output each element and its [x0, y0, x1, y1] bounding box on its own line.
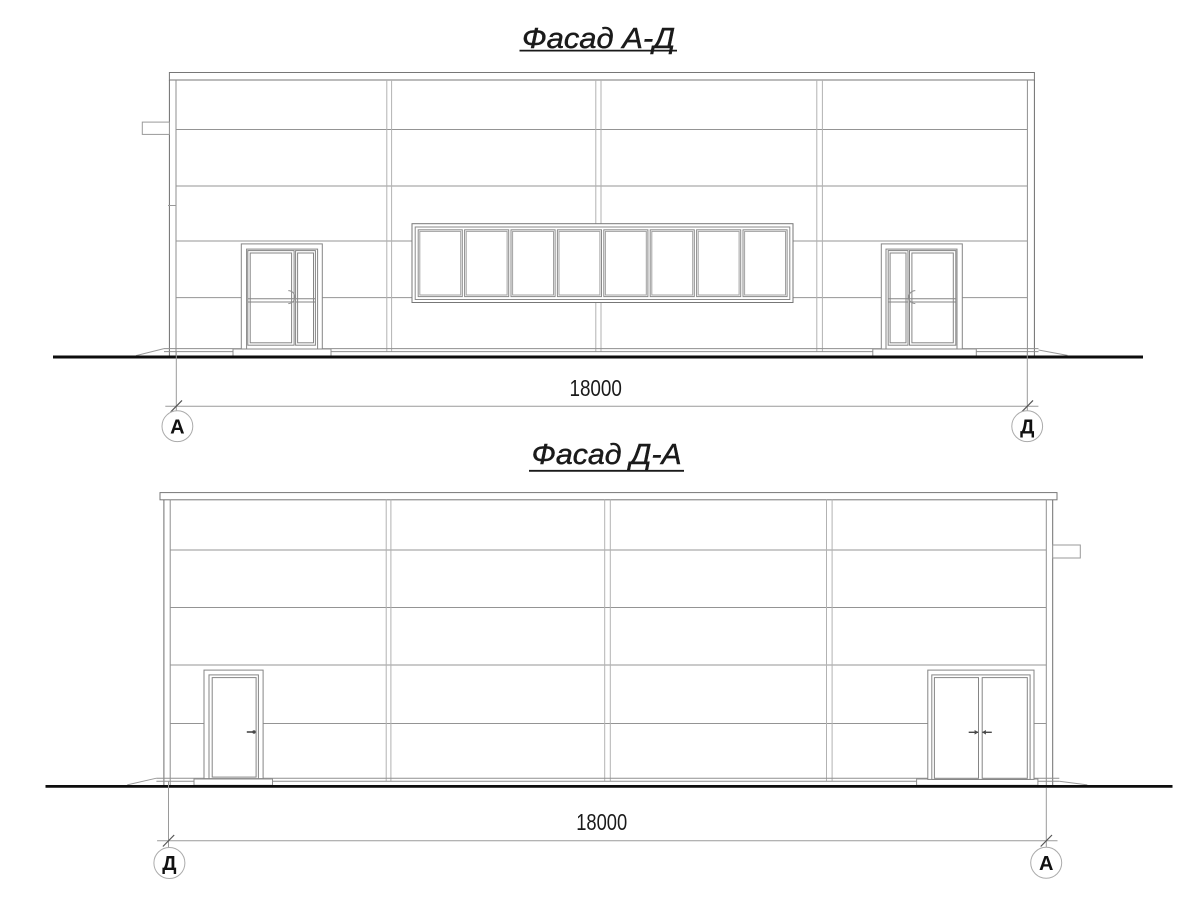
- svg-text:Д: Д: [162, 853, 176, 875]
- svg-text:Фасад Д-А: Фасад Д-А: [532, 439, 682, 471]
- svg-text:Д: Д: [1020, 416, 1034, 438]
- svg-text:18000: 18000: [576, 809, 627, 835]
- svg-text:А: А: [170, 416, 184, 438]
- svg-text:18000: 18000: [569, 375, 622, 401]
- svg-text:А: А: [1039, 853, 1053, 875]
